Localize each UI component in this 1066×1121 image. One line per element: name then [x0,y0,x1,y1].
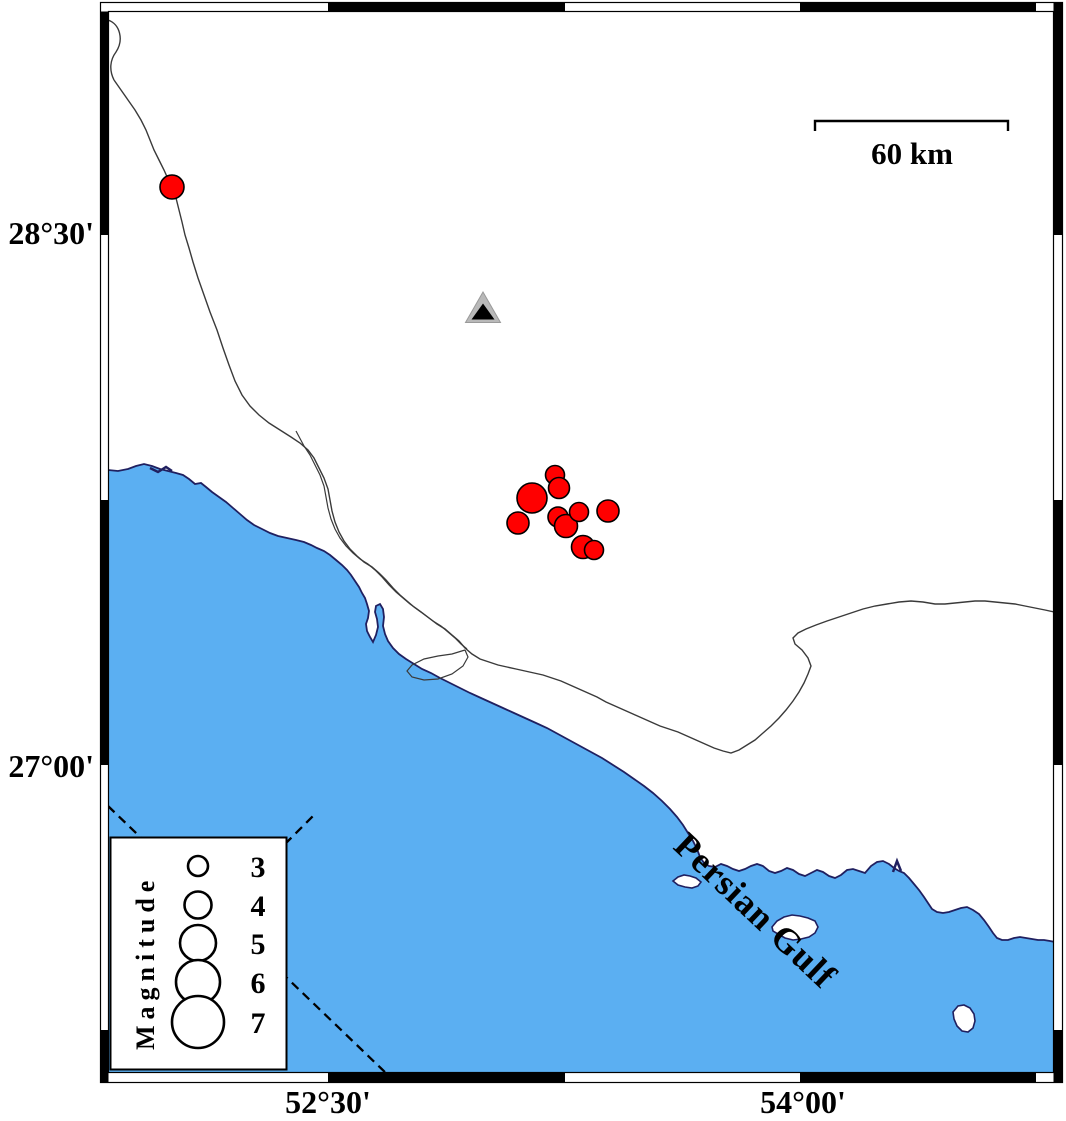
legend-magnitude-label: 6 [251,967,266,1000]
frame-tick-segment [1054,3,1063,12]
earthquake-marker [597,500,619,522]
frame-tick-segment [101,500,109,765]
frame-tick-segment [1054,500,1063,765]
lat-label-27-00: 27°00' [0,748,94,785]
earthquake-marker [507,512,529,534]
earthquake-marker [570,503,589,522]
earthquake-marker [549,478,570,499]
legend-magnitude-label: 5 [251,928,266,961]
frame-tick-segment [800,3,1036,12]
lon-label-54-00: 54°00' [723,1084,883,1121]
legend-magnitude-circle [172,996,224,1048]
earthquake-markers [160,175,619,560]
legend-magnitude-label: 4 [251,890,266,923]
earthquake-marker [160,175,184,199]
legend-magnitude-circle [185,892,212,919]
legend-magnitude-label: 3 [251,851,266,884]
scale-bar-label: 60 km [871,136,953,171]
frame-tick-segment [1054,1073,1063,1083]
legend-magnitude-circle [188,856,208,876]
legend-title: Magnitude [131,875,160,1050]
frame-tick-segment [1054,12,1063,236]
lon-label-52-30: 52°30' [248,1084,408,1121]
map-canvas: 60 km Persian Gulf Magnitude 34567 [0,0,1066,1121]
frame-tick-segment [328,3,565,12]
lat-label-28-30: 28°30' [0,215,94,252]
frame-tick-segment [800,1073,1036,1083]
frame-tick-segment [101,1073,109,1083]
frame-tick-segment [1054,1030,1063,1073]
scale-bar-bracket [815,121,1008,131]
scale-bar: 60 km [815,121,1008,171]
earthquake-marker [585,541,604,560]
map-svg: 60 km Persian Gulf Magnitude 34567 [0,0,1066,1121]
frame-tick-segment [328,1073,565,1083]
legend-magnitude-circle [180,925,216,961]
magnitude-legend: Magnitude 34567 [111,838,287,1070]
frame-tick-segment [101,12,109,236]
legend-magnitude-label: 7 [251,1007,266,1040]
earthquake-marker [517,483,547,513]
road-line-loop-start [108,20,120,80]
frame-tick-segment [101,1030,109,1073]
seismic-station-marker [466,292,501,323]
